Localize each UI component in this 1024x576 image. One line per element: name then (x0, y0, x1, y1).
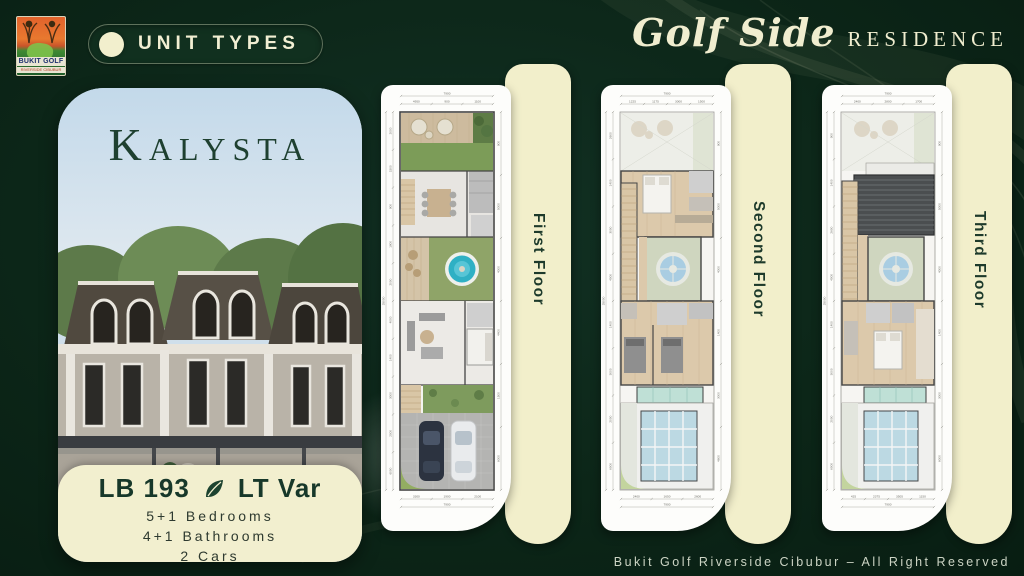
svg-text:7900: 7900 (664, 92, 671, 96)
svg-text:7900: 7900 (664, 503, 671, 507)
bathroom-2 (467, 303, 493, 327)
unit-card-kalysta: Kalysta LB 193 LT Var 5+1 Bedrooms4+1 Ba… (58, 88, 362, 562)
svg-text:1400: 1400 (609, 179, 613, 186)
svg-text:1650: 1650 (664, 495, 671, 499)
carport-canopy (58, 436, 362, 448)
svg-text:900: 900 (938, 141, 942, 146)
pool-deck (401, 237, 429, 301)
svg-text:2600: 2600 (609, 132, 613, 139)
svg-text:2400: 2400 (633, 495, 640, 499)
brand-script-text: Golf Side (632, 10, 835, 55)
svg-text:1175: 1175 (652, 100, 659, 104)
svg-text:25000: 25000 (602, 296, 606, 305)
carport (401, 413, 493, 489)
spec-line: 4+1 Bathrooms (58, 527, 362, 547)
floor-panel-third: Third Floor (822, 62, 1012, 546)
svg-text:7900: 7900 (885, 503, 892, 507)
svg-text:3000: 3000 (938, 392, 942, 399)
svg-text:3000: 3000 (609, 226, 613, 233)
svg-text:4000: 4000 (497, 266, 501, 273)
lt-value: LT Var (238, 473, 322, 504)
tab-first-floor-label: First Floor (505, 110, 571, 410)
slide-unit-types: { "page": { "background": "#0c2618", "ac… (0, 0, 1024, 576)
garden (401, 143, 493, 171)
floorplan-first: 7900 49509001100 330019002100 7900 20001… (381, 85, 511, 531)
stairs (401, 179, 415, 225)
bathroom (866, 303, 890, 323)
kitchen (469, 171, 493, 213)
svg-text:2400: 2400 (854, 100, 861, 104)
svg-text:3000: 3000 (830, 368, 834, 375)
svg-text:6000: 6000 (830, 463, 834, 470)
land-building-line: LB 193 LT Var (58, 473, 362, 504)
svg-text:3300: 3300 (413, 495, 420, 499)
svg-text:1700: 1700 (915, 100, 922, 104)
svg-text:25000: 25000 (382, 296, 386, 305)
floorplan-sheet-second: 7900 1225117530001500 240016502600 7900 … (601, 85, 731, 531)
tab-third-floor-label: Third Floor (946, 110, 1012, 410)
tab-second-floor[interactable]: Second Floor (725, 64, 791, 544)
bathroom-2 (657, 303, 687, 325)
svg-text:6000: 6000 (938, 455, 942, 462)
svg-text:5000: 5000 (497, 203, 501, 210)
svg-text:2600: 2600 (830, 226, 834, 233)
svg-text:1500: 1500 (698, 100, 705, 104)
floor-panel-first: First Floor (381, 62, 571, 546)
car-white (451, 421, 476, 481)
svg-text:900: 900 (830, 133, 834, 138)
unit-specs: 5+1 Bedrooms4+1 Bathrooms2 Cars (58, 507, 362, 562)
svg-text:1400: 1400 (830, 179, 834, 186)
svg-text:1150: 1150 (919, 495, 926, 499)
svg-text:25000: 25000 (823, 296, 827, 305)
svg-text:7900: 7900 (444, 503, 451, 507)
svg-text:2800: 2800 (885, 100, 892, 104)
palm-trees-icon (21, 19, 61, 45)
svg-text:1500: 1500 (497, 392, 501, 399)
tab-first-floor[interactable]: First Floor (505, 64, 571, 544)
svg-text:2100: 2100 (474, 495, 481, 499)
bathroom-2 (892, 303, 914, 323)
floorplan-sheet-first: 7900 49509001100 330019002100 7900 20001… (381, 85, 511, 531)
svg-text:7900: 7900 (885, 92, 892, 96)
svg-text:4400: 4400 (497, 329, 501, 336)
bathroom-master (689, 171, 713, 193)
svg-text:425: 425 (851, 495, 856, 499)
floor-panel-second: Second Floor (601, 62, 791, 546)
svg-text:4000: 4000 (609, 274, 613, 281)
svg-text:1400: 1400 (717, 329, 721, 336)
svg-text:900: 900 (389, 204, 393, 209)
lb-value: LB 193 (99, 473, 190, 504)
floorplan-third: 7900 240028001700 425237535051150 7900 9… (822, 85, 952, 531)
svg-text:4000: 4000 (830, 274, 834, 281)
svg-text:7900: 7900 (444, 92, 451, 96)
svg-text:2000: 2000 (389, 278, 393, 285)
svg-text:2375: 2375 (873, 495, 880, 499)
svg-text:3000: 3000 (609, 368, 613, 375)
svg-text:5000: 5000 (938, 203, 942, 210)
svg-text:6000: 6000 (389, 467, 393, 474)
svg-text:900: 900 (497, 141, 501, 146)
tab-third-floor[interactable]: Third Floor (946, 64, 1012, 544)
logo-subtitle: RIVERSIDE CIBUBUR (17, 67, 65, 73)
wardrobe (844, 321, 858, 355)
svg-text:1400: 1400 (830, 321, 834, 328)
svg-text:1500: 1500 (389, 165, 393, 172)
svg-text:3000: 3000 (717, 392, 721, 399)
svg-text:1100: 1100 (474, 100, 481, 104)
svg-text:4000: 4000 (389, 316, 393, 323)
unit-name: Kalysta (58, 118, 362, 171)
leaf-icon (202, 477, 226, 501)
svg-text:1400: 1400 (389, 354, 393, 361)
unit-spec-box: LB 193 LT Var 5+1 Bedrooms4+1 Bathrooms2… (58, 465, 362, 562)
svg-text:4000: 4000 (938, 266, 942, 273)
unit-types-badge[interactable]: UNIT TYPES (88, 24, 323, 64)
dining-table (427, 189, 451, 217)
stairs (842, 181, 858, 307)
wardrobe (689, 197, 713, 211)
glass-roof (864, 411, 918, 481)
svg-text:2000: 2000 (389, 430, 393, 437)
svg-text:1800: 1800 (389, 241, 393, 248)
svg-text:5000: 5000 (717, 203, 721, 210)
svg-text:4950: 4950 (413, 100, 420, 104)
svg-text:1400: 1400 (938, 329, 942, 336)
svg-text:3000: 3000 (675, 100, 682, 104)
badge-dot-icon (99, 32, 124, 57)
floorplan-sheet-third: 7900 240028001700 425237535051150 7900 9… (822, 85, 952, 531)
svg-text:2000: 2000 (830, 415, 834, 422)
svg-text:4000: 4000 (717, 266, 721, 273)
svg-text:6000: 6000 (497, 455, 501, 462)
svg-text:2600: 2600 (694, 495, 701, 499)
svg-text:900: 900 (717, 141, 721, 146)
spec-line: 2 Cars (58, 547, 362, 562)
stairs (621, 183, 637, 305)
svg-text:1400: 1400 (609, 321, 613, 328)
logo-title: BUKIT GOLF (17, 57, 65, 66)
brand-title: Golf Side RESIDENCE (632, 10, 1008, 55)
car-dark (419, 421, 444, 481)
bathroom (471, 215, 493, 237)
svg-text:2000: 2000 (609, 415, 613, 422)
svg-text:900: 900 (444, 100, 449, 104)
glass-canopy (864, 387, 926, 403)
svg-text:1900: 1900 (444, 495, 451, 499)
svg-text:4600: 4600 (717, 455, 721, 462)
copyright-text: Bukit Golf Riverside Cibubur – All Right… (614, 555, 1010, 569)
svg-text:6000: 6000 (609, 463, 613, 470)
svg-text:3505: 3505 (896, 495, 903, 499)
bukit-golf-logo: BUKIT GOLF RIVERSIDE CIBUBUR (16, 16, 66, 76)
sofa (407, 321, 415, 351)
svg-text:2000: 2000 (389, 127, 393, 134)
tab-second-floor-label: Second Floor (725, 110, 791, 410)
balcony (916, 309, 934, 379)
spec-line: 5+1 Bedrooms (58, 507, 362, 527)
badge-label: UNIT TYPES (138, 33, 300, 55)
svg-text:3000: 3000 (389, 392, 393, 399)
floorplan-second: 7900 1225117530001500 240016502600 7900 … (601, 85, 731, 531)
svg-text:1225: 1225 (629, 100, 636, 104)
brand-serif-text: RESIDENCE (848, 27, 1009, 52)
